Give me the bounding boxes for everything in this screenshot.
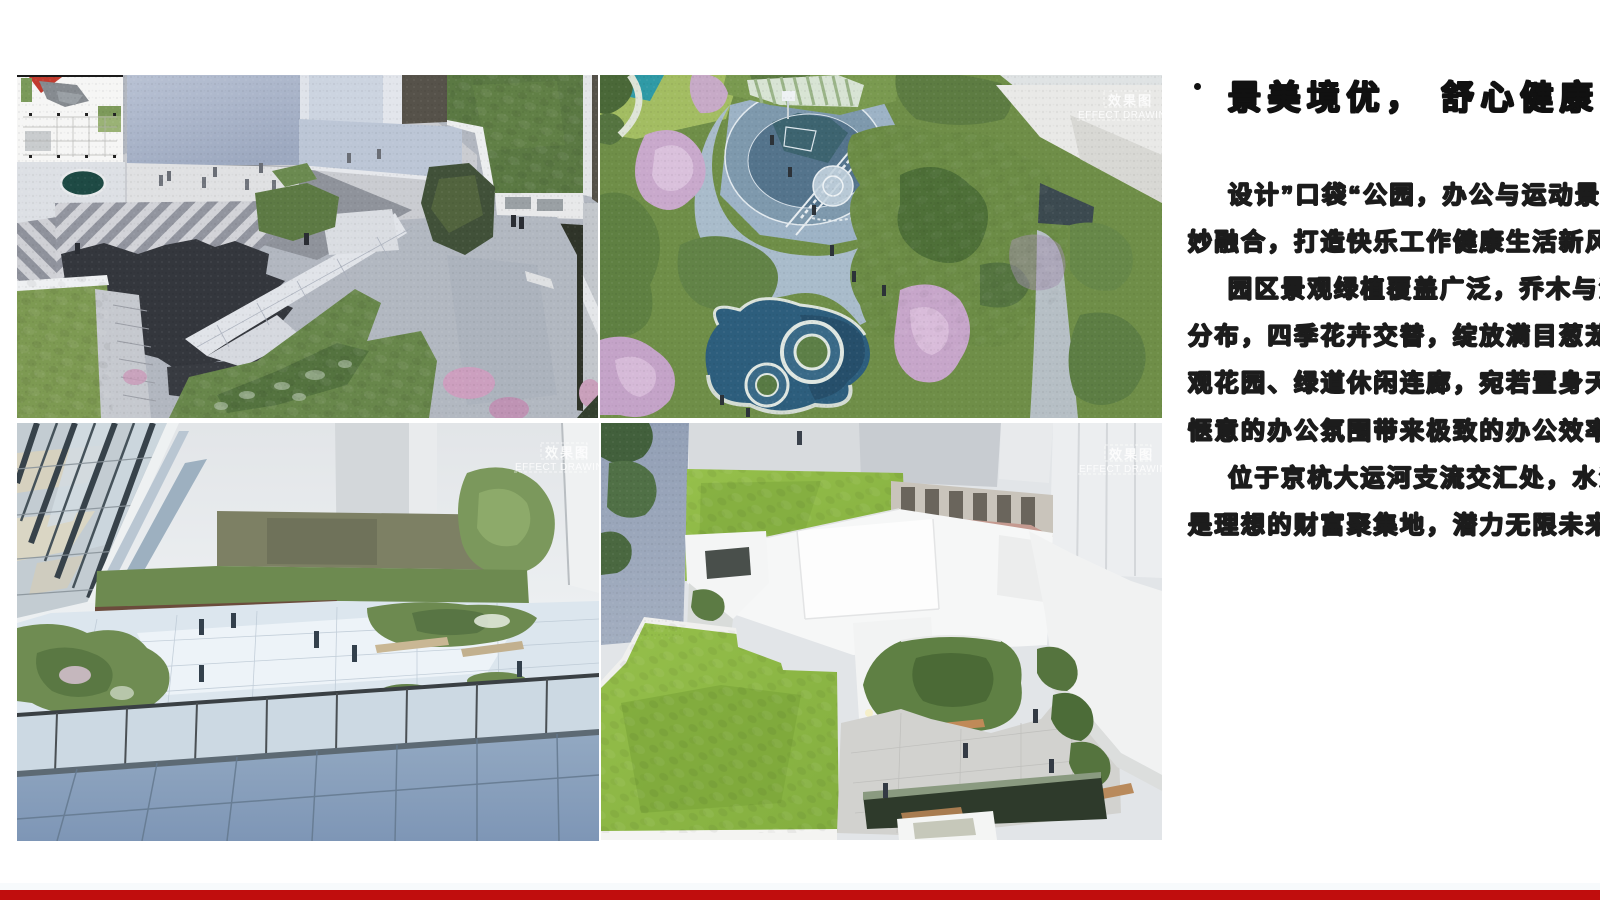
svg-text:效果图: 效果图: [1109, 447, 1154, 462]
svg-text:EFFECT DRAWING: EFFECT DRAWING: [1079, 464, 1162, 475]
svg-text:效果图: 效果图: [545, 445, 590, 460]
svg-text:EFFECT DRAWING: EFFECT DRAWING: [515, 462, 599, 473]
svg-text:效果图: 效果图: [1108, 93, 1153, 108]
svg-text:EFFECT DRAWING: EFFECT DRAWING: [1078, 110, 1162, 121]
